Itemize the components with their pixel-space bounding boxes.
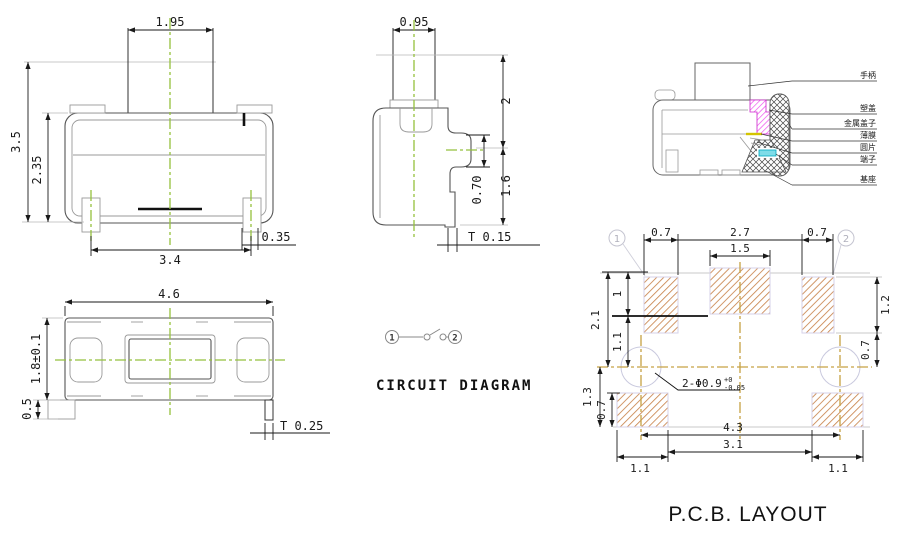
dim-width: 1.8±0.1 xyxy=(29,334,43,385)
tact-switch-drawing-sheet: 1.95 3.5 2.35 3.4 0.35 0.95 xyxy=(0,0,900,536)
dim-right-pad-offset: 0.7 xyxy=(859,340,872,360)
label-dome-disc: 圆片 xyxy=(860,142,876,152)
plastic-cover-hatch xyxy=(750,100,770,134)
lead-bottom-left xyxy=(48,400,75,419)
hole-tolerance-upper: +0 xyxy=(724,376,732,384)
pad-top-right xyxy=(802,277,834,333)
front-view: 1.95 3.5 2.35 3.4 0.35 xyxy=(9,15,296,267)
hole-tolerance-lower: -0.05 xyxy=(724,384,745,392)
side-profile-outline xyxy=(373,108,471,227)
dim-upper-height: 2 xyxy=(499,97,513,104)
dim-lower-height: 1.6 xyxy=(499,175,513,197)
pin2-number: 2 xyxy=(452,334,457,344)
circuit-diagram: 1 2 CIRCUIT DIAGRAM xyxy=(376,329,532,394)
switch-arm xyxy=(430,329,440,335)
label-terminal: 端子 xyxy=(860,154,876,164)
dim-left-lower: 1.1 xyxy=(611,332,624,352)
label-metal-cover: 金属盖子 xyxy=(844,118,876,128)
dim-center-pad-width: 1.5 xyxy=(730,242,750,255)
contact-right xyxy=(440,334,446,340)
label-membrane: 薄膜 xyxy=(860,130,876,140)
label-plastic-cover: 塑盖 xyxy=(860,103,876,113)
dim-hole-span: 4.3 xyxy=(723,421,743,434)
dim-lead-length: 0.5 xyxy=(20,398,34,420)
dim-body-height: 2.35 xyxy=(30,156,44,185)
dim-left-upper: 1 xyxy=(611,291,624,298)
technical-drawing-canvas: 1.95 3.5 2.35 3.4 0.35 0.95 xyxy=(0,0,900,536)
pad-top-left xyxy=(644,277,678,333)
top-tab-section xyxy=(655,90,675,100)
stem-section xyxy=(695,63,750,100)
dim-pad-left-width: 0.7 xyxy=(651,226,671,239)
side-view: 0.95 2 1.6 0.70 T 0.15 xyxy=(373,15,540,252)
hole-note: 2-Φ0.9 xyxy=(682,377,722,390)
label-stem: 手柄 xyxy=(860,70,876,80)
pin2-balloon-number: 2 xyxy=(843,234,849,245)
pad-bottom-left xyxy=(617,393,668,427)
dim-plate-thickness: T 0.25 xyxy=(280,419,323,433)
dim-left-total: 2.1 xyxy=(589,310,602,330)
dim-right-pad-height: 1.2 xyxy=(879,295,892,315)
dim-plate-thickness: T 0.15 xyxy=(468,230,511,244)
dim-lead-span: 3.4 xyxy=(159,253,181,267)
terminal-section xyxy=(759,150,776,156)
balloon-leader xyxy=(623,244,645,276)
top-view: 4.6 1.8±0.1 0.5 T 0.25 xyxy=(20,287,330,440)
dim-lower-pad-height: 0.7 xyxy=(595,400,608,420)
top-tab-right xyxy=(237,105,272,113)
top-view-outline xyxy=(65,318,273,400)
lead-bottom-right xyxy=(265,400,273,420)
pcb-layout-title: P.C.B. LAYOUT xyxy=(668,503,827,526)
dim-lower-inner-span: 3.1 xyxy=(723,438,743,451)
dim-lower-pad-left-width: 1.1 xyxy=(630,462,650,475)
base-notch xyxy=(722,170,740,175)
dim-lower-pad-right-width: 1.1 xyxy=(828,462,848,475)
stem-pocket xyxy=(400,108,432,132)
dim-pad-right-width: 0.7 xyxy=(807,226,827,239)
top-tab-left xyxy=(70,105,105,113)
contact-left xyxy=(424,334,430,340)
lead-right xyxy=(243,198,261,232)
dim-total-height: 3.5 xyxy=(9,131,23,153)
dim-length: 4.6 xyxy=(158,287,180,301)
pcb-layout: 1 2 0.7 2.7 0.7 1.5 2.1 1 1.1 1.3 0.7 xyxy=(581,226,892,526)
base-block xyxy=(666,150,678,172)
pin1-balloon-number: 1 xyxy=(614,234,620,245)
balloon-leader xyxy=(833,245,841,275)
dim-step-height: 0.70 xyxy=(470,176,484,205)
dim-lower-left-height: 1.3 xyxy=(581,387,594,407)
circuit-diagram-title: CIRCUIT DIAGRAM xyxy=(376,378,532,394)
dim-lead-width: 0.35 xyxy=(262,230,291,244)
base-notch xyxy=(700,170,718,175)
pin1-number: 1 xyxy=(389,334,394,344)
cross-section-view: 手柄 塑盖 金属盖子 薄膜 圆片 端子 基座 xyxy=(653,63,877,185)
switch-body-inner xyxy=(72,120,266,216)
dim-pads-inner-span: 2.7 xyxy=(730,226,750,239)
leader-line xyxy=(748,81,792,86)
pad-bottom-right xyxy=(812,393,863,427)
label-base: 基座 xyxy=(860,174,876,184)
